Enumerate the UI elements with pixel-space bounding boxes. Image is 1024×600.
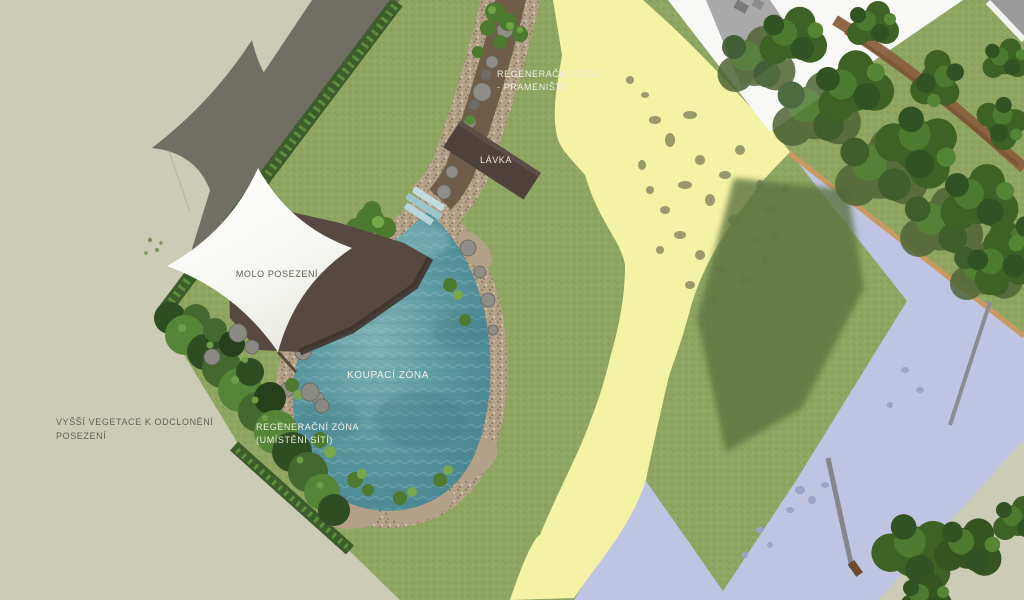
garden-plan-rendering: REGENERAČNÍ ZÓNA - PRAMENIŠTĚ LÁVKA MOLO… (0, 0, 1024, 600)
label-regeneration-spring-line2: - PRAMENIŠTĚ (497, 82, 568, 92)
label-footbridge: LÁVKA (480, 155, 512, 165)
label-regeneration-nets-line2: (UMÍSTĚNÍ SÍTÍ) (256, 435, 333, 445)
label-regeneration-spring-line1: REGENERAČNÍ ZÓNA (497, 69, 600, 79)
site-plan-canvas: REGENERAČNÍ ZÓNA - PRAMENIŠTĚ LÁVKA MOLO… (0, 0, 1024, 600)
label-screening-vegetation-line2: POSEZENÍ (56, 431, 106, 441)
label-swimming-zone: KOUPACÍ ZÓNA (347, 368, 429, 381)
label-deck-seating: MOLO POSEZENÍ (236, 269, 318, 279)
label-screening-vegetation-line1: VYŠŠÍ VEGETACE K ODCLONĚNÍ (56, 417, 213, 427)
label-regeneration-nets-line1: REGENERAČNÍ ZÓNA (256, 422, 359, 432)
